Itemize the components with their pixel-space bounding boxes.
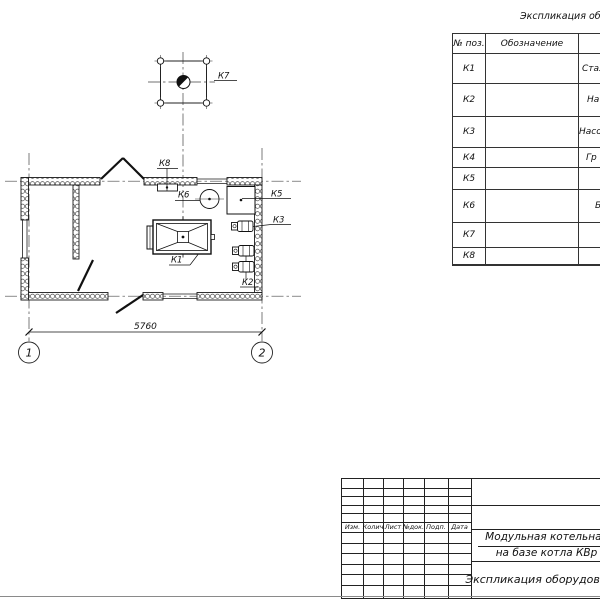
row-designation <box>486 84 579 117</box>
revision-col-kolich: Колич <box>363 522 383 532</box>
row-name: На <box>579 84 600 117</box>
row-name <box>579 223 600 248</box>
row-name: Стал <box>579 54 600 84</box>
row-name <box>579 248 600 265</box>
project-title-line2: на базе котла КВр <box>471 545 600 561</box>
revision-col-list: Лист <box>383 522 403 532</box>
row-pos: К8 <box>453 248 486 265</box>
label-k6: К6 <box>178 191 190 201</box>
label-k5: К5 <box>271 190 282 200</box>
axis-bubbles: 1 2 <box>19 342 273 363</box>
title-block-gridline <box>342 496 471 497</box>
row-pos: К2 <box>453 84 486 117</box>
row-designation <box>486 223 579 248</box>
label-k2: К2 <box>242 278 253 288</box>
title-block-gridline <box>342 574 471 575</box>
row-pos: К6 <box>453 190 486 223</box>
label-k7: К7 <box>218 72 230 82</box>
title-block-gridline <box>342 564 471 565</box>
revision-col-izm: Изм. <box>342 522 363 532</box>
col-header-pos: № поз. <box>453 34 486 54</box>
row-name: Б <box>579 190 600 223</box>
title-block: Изм. Колич Лист №док. Подп. Дата Модульн… <box>341 478 600 599</box>
row-pos: К1 <box>453 54 486 84</box>
row-pos: К5 <box>453 168 486 190</box>
axis-1-label: 1 <box>26 347 33 360</box>
row-designation <box>486 117 579 148</box>
revision-col-podp: Подп. <box>424 522 448 532</box>
label-k8: К8 <box>159 159 171 169</box>
title-block-gridline <box>342 585 471 586</box>
row-designation <box>486 190 579 223</box>
row-pos: К4 <box>453 148 486 168</box>
axis-2-label: 2 <box>259 347 266 360</box>
row-pos: К7 <box>453 223 486 248</box>
label-k3: К3 <box>273 216 284 226</box>
equipment-k8: К8 <box>157 159 178 191</box>
row-designation <box>486 54 579 84</box>
drawing-sheet: К7 К8 К6 К5 <box>0 0 600 600</box>
project-title-underline <box>478 546 600 547</box>
row-designation <box>486 248 579 265</box>
title-block-gridline <box>342 543 471 544</box>
row-name: Гр <box>579 148 600 168</box>
title-block-gridline <box>342 553 471 554</box>
project-title: Модульная котельная на базе котла КВр <box>471 529 600 561</box>
title-block-gridline <box>342 513 471 514</box>
revision-col-data: Дата <box>448 522 471 532</box>
title-block-gridline <box>342 532 471 533</box>
row-name <box>579 168 600 190</box>
equipment-table-title: Экспликация оборудования <box>452 11 600 22</box>
dimension-text: 5760 <box>134 322 157 332</box>
col-header-designation: Обозначение <box>486 34 579 54</box>
sheet-frame-bottom <box>0 596 600 597</box>
title-block-gridline <box>342 488 471 489</box>
dimension-5760: 5760 <box>26 322 266 336</box>
equipment-table-grid: № поз. Обозначение К1 Стал К2 На К3 Насо… <box>452 33 600 266</box>
row-name: Насос <box>579 117 600 148</box>
row-designation <box>486 168 579 190</box>
walls <box>21 178 262 301</box>
title-block-gridline <box>342 505 471 506</box>
label-k1: К1 <box>171 256 182 266</box>
title-block-gridline <box>471 505 600 506</box>
row-designation <box>486 148 579 168</box>
revision-col-ndok: №док. <box>403 522 424 532</box>
col-header-name <box>579 34 600 54</box>
equipment-k1-boiler: К1 <box>147 217 215 266</box>
row-pos: К3 <box>453 117 486 148</box>
project-title-line1: Модульная котельная <box>471 529 600 545</box>
document-title: Экспликация оборудования <box>471 561 600 598</box>
equipment-k6: К6 <box>175 190 224 209</box>
